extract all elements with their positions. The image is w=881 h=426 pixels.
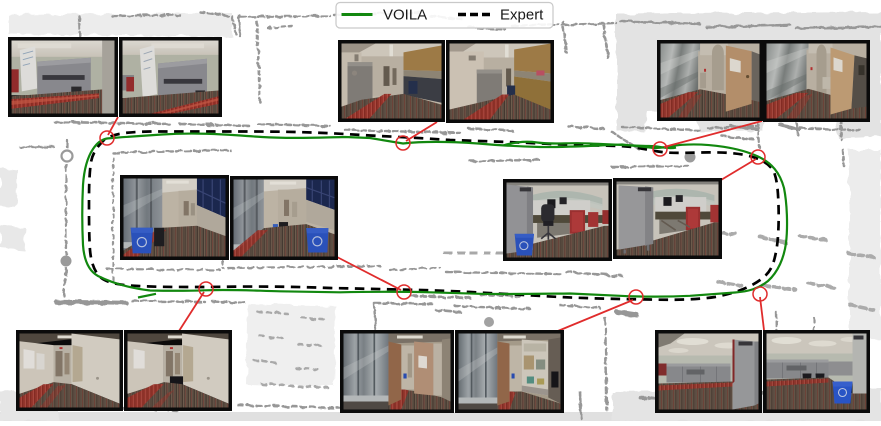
svg-text:Expert: Expert (500, 7, 544, 24)
svg-text:VOILA: VOILA (383, 7, 427, 24)
